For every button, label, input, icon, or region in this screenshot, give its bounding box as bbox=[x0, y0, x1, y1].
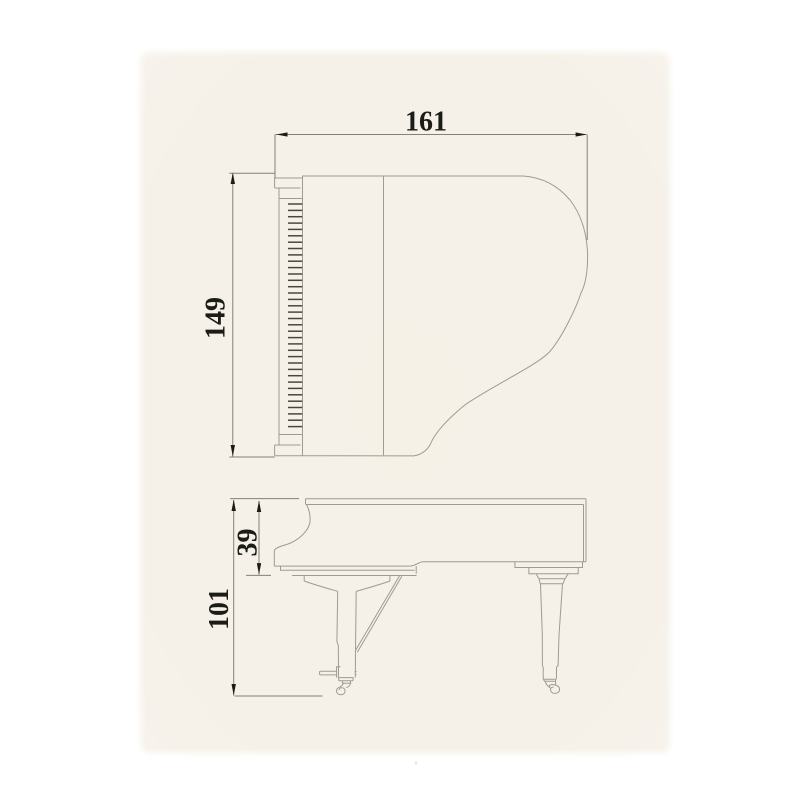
svg-text:149: 149 bbox=[201, 297, 232, 339]
svg-text:101: 101 bbox=[204, 588, 235, 630]
svg-text:161: 161 bbox=[405, 107, 447, 138]
